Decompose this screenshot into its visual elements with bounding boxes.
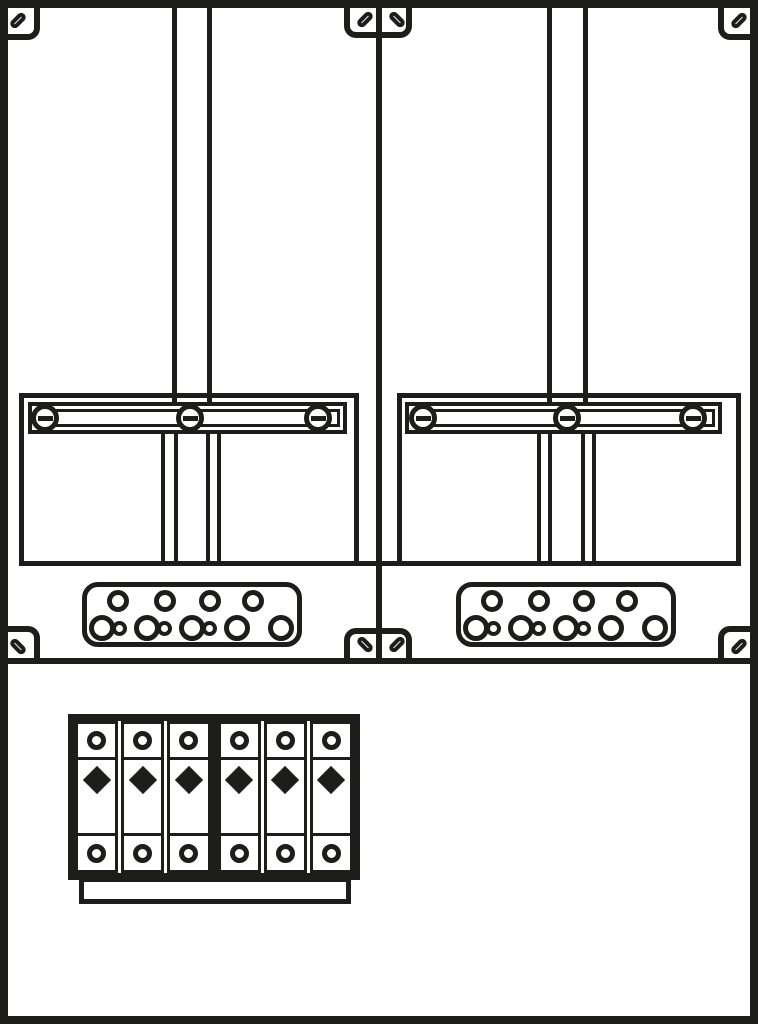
cable-entry-hole-icon — [573, 590, 595, 612]
module-switch-face — [313, 760, 350, 833]
breaker-module-5 — [264, 721, 307, 873]
fastener-bracket-mid-center — [344, 628, 412, 658]
cable-entry-hole-icon — [481, 590, 503, 612]
fastener-bracket-mid-right — [718, 626, 750, 658]
terminal-circle-icon — [276, 731, 295, 750]
terminal-circle-icon — [230, 731, 249, 750]
screw-slot-icon — [38, 416, 53, 421]
fastener-bracket-top-center — [344, 8, 412, 38]
fixing-slot-icon — [8, 637, 27, 656]
terminal-circle-icon — [322, 844, 341, 863]
module-top-terminal — [78, 724, 115, 760]
gland-band-bottom-line — [8, 658, 750, 664]
mounting-rail-right — [583, 8, 588, 408]
cable-entry-hole-icon — [242, 590, 264, 612]
mounting-rail-right — [547, 8, 552, 408]
diamond-indicator-icon — [82, 766, 110, 794]
diamond-indicator-icon — [225, 766, 253, 794]
cable-entry-hole-icon — [107, 590, 129, 612]
terminal-circle-icon — [179, 844, 198, 863]
cable-entry-hole-icon — [154, 590, 176, 612]
module-top-terminal — [221, 724, 258, 760]
frame-border-left — [0, 0, 8, 1024]
mounting-rail-left — [172, 8, 177, 408]
screw-slot-icon — [311, 416, 326, 421]
cable-entry-hole-icon — [268, 615, 294, 641]
frame-border-right — [750, 0, 758, 1024]
module-switch-face — [170, 760, 207, 833]
cable-entry-hole-icon — [199, 590, 221, 612]
terminal-circle-icon — [179, 731, 198, 750]
screw-icon — [409, 404, 437, 432]
fastener-bracket-mid-left — [8, 626, 40, 658]
cable-entry-hole-icon — [576, 621, 591, 636]
breaker-base-strip — [79, 877, 351, 904]
terminal-circle-icon — [87, 844, 106, 863]
diamond-indicator-icon — [175, 766, 203, 794]
breaker-module-1 — [75, 721, 118, 873]
module-bottom-terminal — [170, 833, 207, 870]
module-top-terminal — [124, 724, 161, 760]
module-switch-face — [221, 760, 258, 833]
fixing-slot-icon — [729, 637, 748, 656]
diamond-indicator-icon — [317, 766, 345, 794]
module-switch-face — [78, 760, 115, 833]
cable-entry-hole-icon — [642, 615, 668, 641]
screw-icon — [176, 404, 204, 432]
terminal-circle-icon — [322, 731, 341, 750]
screw-icon — [679, 404, 707, 432]
terminal-circle-icon — [230, 844, 249, 863]
terminal-circle-icon — [87, 731, 106, 750]
cable-entry-hole-icon — [616, 590, 638, 612]
terminal-circle-icon — [133, 844, 152, 863]
cable-entry-hole-icon — [531, 621, 546, 636]
fastener-bracket-top-left — [8, 8, 40, 40]
fixing-slot-icon — [355, 10, 374, 29]
terminal-circle-icon — [133, 731, 152, 750]
cabinet-diagram — [0, 0, 758, 1024]
fixing-slot-icon — [355, 635, 374, 654]
cable-entry-hole-icon — [528, 590, 550, 612]
module-switch-face — [124, 760, 161, 833]
breaker-module-3 — [167, 721, 210, 873]
module-top-terminal — [267, 724, 304, 760]
breaker-module-4 — [218, 721, 261, 873]
terminal-circle-icon — [276, 844, 295, 863]
screw-slot-icon — [560, 416, 575, 421]
fixing-slot-icon — [729, 11, 748, 30]
screw-slot-icon — [416, 416, 431, 421]
fixing-slot-icon — [387, 635, 406, 654]
module-bottom-terminal — [124, 833, 161, 870]
diamond-indicator-icon — [129, 766, 157, 794]
cable-entry-hole-icon — [157, 621, 172, 636]
fixing-slot-icon — [387, 10, 406, 29]
fastener-bracket-top-right — [718, 8, 750, 40]
module-bottom-terminal — [78, 833, 115, 870]
cable-entry-hole-icon — [112, 621, 127, 636]
breaker-group-divider — [211, 721, 218, 873]
cable-entry-hole-icon — [486, 621, 501, 636]
cable-entry-hole-icon — [224, 615, 250, 641]
screw-slot-icon — [183, 416, 198, 421]
breaker-module-2 — [121, 721, 164, 873]
module-bottom-terminal — [221, 833, 258, 870]
screw-slot-icon — [686, 416, 701, 421]
screw-icon — [553, 404, 581, 432]
module-switch-face — [267, 760, 304, 833]
mounting-rail-left — [207, 8, 212, 408]
diamond-indicator-icon — [271, 766, 299, 794]
breaker-block — [68, 714, 360, 880]
screw-icon — [31, 404, 59, 432]
cable-entry-hole-icon — [202, 621, 217, 636]
module-bottom-terminal — [313, 833, 350, 870]
frame-border-bottom — [0, 1016, 758, 1024]
module-top-terminal — [313, 724, 350, 760]
breaker-module-6 — [310, 721, 353, 873]
screw-icon — [304, 404, 332, 432]
module-bottom-terminal — [267, 833, 304, 870]
cable-entry-hole-icon — [598, 615, 624, 641]
module-top-terminal — [170, 724, 207, 760]
fixing-slot-icon — [8, 11, 27, 30]
